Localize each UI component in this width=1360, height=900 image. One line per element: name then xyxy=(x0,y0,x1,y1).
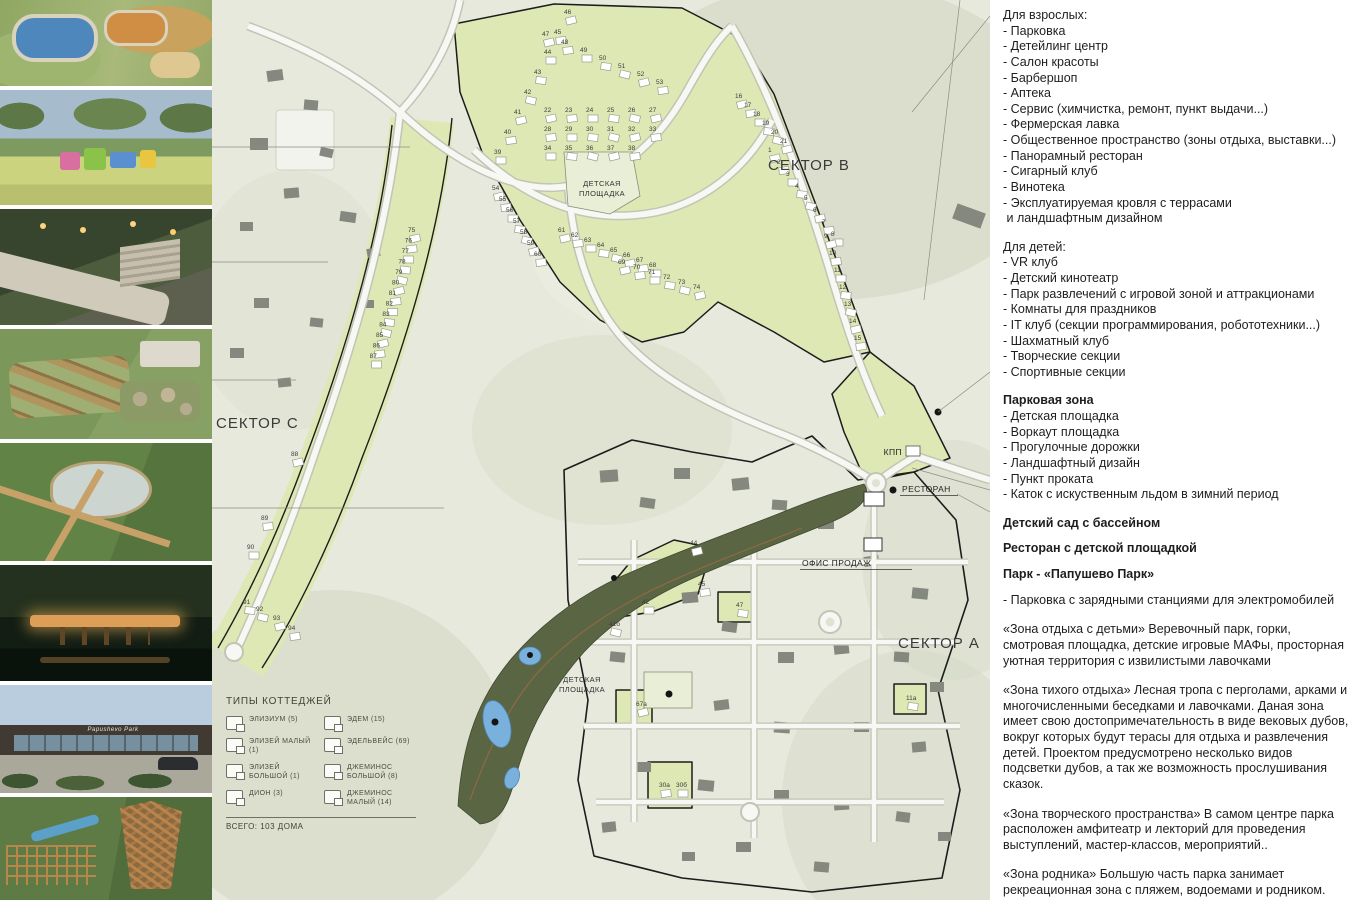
zone-creative-paragraph: «Зона творческого пространства» В самом … xyxy=(1003,807,1352,854)
lot-number: 37 xyxy=(607,145,615,152)
building-footprint xyxy=(895,811,910,823)
building-footprint xyxy=(912,741,927,752)
lot-number: 44 xyxy=(544,49,552,56)
zone-spring-paragraph: «Зона родника» Большую часть парка заним… xyxy=(1003,867,1352,900)
lot-number: 30а xyxy=(659,782,670,789)
building-footprint xyxy=(639,497,655,509)
pool-shape xyxy=(12,14,98,62)
lot-number: 30 xyxy=(586,126,594,133)
lot-number: 41 xyxy=(514,109,522,116)
lot-number: 15 xyxy=(854,335,862,342)
adults-item: - Общественное пространство (зоны отдыха… xyxy=(1003,133,1352,149)
park-zone-item: - Воркаут площадка xyxy=(1003,425,1352,441)
lot-number: 26 xyxy=(628,107,636,114)
masterplan-map: 1617181920211234567891011121314154645444… xyxy=(212,0,990,900)
lot-number: 42 xyxy=(642,599,650,606)
park-zone-header: Парковая зона xyxy=(1003,393,1352,409)
children-item: - Парк развлечений с игровой зоной и атт… xyxy=(1003,287,1352,303)
park-zone-item: - Прогулочные дорожки xyxy=(1003,440,1352,456)
lot-number: 77 xyxy=(402,248,410,255)
playground-north-label-1: ДЕТСКАЯ xyxy=(583,179,621,188)
lot-number: 67а xyxy=(636,701,647,708)
lot-number: 50 xyxy=(599,55,607,62)
lot-number: 19 xyxy=(762,120,770,127)
lot-number: 43 xyxy=(534,69,542,76)
lot-number: 32 xyxy=(628,126,636,133)
lot-number: 54 xyxy=(492,185,500,192)
lot-number: 78 xyxy=(398,259,406,266)
cottage-type-label: ЭДЕЛЬВЕЙС (69) xyxy=(347,737,410,746)
cottage-type-icon xyxy=(226,716,243,730)
park-zone-list: - Детская площадка- Воркаут площадка- Пр… xyxy=(1003,409,1352,503)
adults-item: - Детейлинг центр xyxy=(1003,39,1352,55)
adults-item: - Панорамный ресторан xyxy=(1003,149,1352,165)
lot-number: 35 xyxy=(565,145,573,152)
lot-number: 46 xyxy=(564,9,572,16)
building-footprint xyxy=(772,499,788,510)
lot-number: 9 xyxy=(824,233,828,240)
cottage-type-icon xyxy=(324,738,341,752)
lot-number: 80 xyxy=(392,280,400,287)
legend-total: ВСЕГО: 103 ДОМА xyxy=(226,817,416,831)
rope-net-shape xyxy=(6,845,96,885)
lot-number: 57 xyxy=(513,218,521,225)
play-equipment-shape xyxy=(60,152,80,170)
adults-item: - Парковка xyxy=(1003,24,1352,40)
lot-number: 85 xyxy=(376,332,384,339)
legend-grid: ЭЛИЗИУМ (5)ЭДЕМ (15)ЭЛИЗЕЙ МАЛЫЙ (1)ЭДЕЛ… xyxy=(226,715,416,808)
building-footprint xyxy=(713,699,729,711)
lot-number: 18 xyxy=(753,111,761,118)
restaurant-line: Ресторан с детской площадкой xyxy=(1003,541,1352,557)
lot-number: 89 xyxy=(261,515,269,522)
adults-item: - Сервис (химчистка, ремонт, пункт выдач… xyxy=(1003,102,1352,118)
lights-shape xyxy=(40,223,46,229)
lot-number: 71 xyxy=(648,269,656,276)
cottage-type-label: ДИОН (3) xyxy=(249,789,283,798)
bridge-shape xyxy=(30,615,180,627)
lot-number: 59 xyxy=(527,240,535,247)
lot-number: 66 xyxy=(623,252,631,259)
lot-number: 7 xyxy=(822,219,826,226)
lot-number: 93 xyxy=(273,615,281,622)
lot-number: 27 xyxy=(649,107,657,114)
zone-kids-paragraph: «Зона отдыха с детьми» Веревочный парк, … xyxy=(1003,622,1352,669)
lot-number: 81 xyxy=(389,290,397,297)
building-footprint xyxy=(230,348,244,358)
lot-number: 40 xyxy=(504,129,512,136)
building-footprint xyxy=(278,377,292,387)
building-footprint xyxy=(250,138,268,150)
children-item: - Шахматный клуб xyxy=(1003,334,1352,350)
lot-number: 47 xyxy=(542,31,550,38)
adults-list: - Парковка- Детейлинг центр- Салон красо… xyxy=(1003,24,1352,227)
children-item: - Детский кинотеатр xyxy=(1003,271,1352,287)
lot-number: 11а xyxy=(906,695,917,702)
building-footprint xyxy=(674,468,690,479)
playground-north-label-2: ПЛОЩАДКА xyxy=(579,189,625,198)
lot-number: 65 xyxy=(610,247,618,254)
playground-south-label-1: ДЕТСКАЯ xyxy=(563,675,601,684)
building-footprint xyxy=(911,587,928,600)
lot-number: 82 xyxy=(386,301,394,308)
legend-item: ЭЛИЗЕЙ БОЛЬШОЙ (1) xyxy=(226,763,318,782)
building-footprint xyxy=(600,469,619,482)
lot-number: 55 xyxy=(499,196,507,203)
section-park-zone: Парковая зона - Детская площадка- Воркау… xyxy=(1003,393,1352,502)
adults-item: - Фермерская лавка xyxy=(1003,117,1352,133)
stairs-shape xyxy=(120,239,180,287)
building-footprint xyxy=(310,317,324,327)
adults-item: - Винотека xyxy=(1003,180,1352,196)
lot-number: 67 xyxy=(636,257,644,264)
cottage-type-icon xyxy=(324,716,341,730)
lot-number: 84 xyxy=(379,322,387,329)
lot-number: 36 xyxy=(586,145,594,152)
lot-number: 79 xyxy=(395,269,403,276)
lot-number: 16 xyxy=(735,93,743,100)
building-footprint xyxy=(930,682,944,692)
lot-number: 20 xyxy=(771,129,779,136)
children-item: - Комнаты для праздников xyxy=(1003,302,1352,318)
playground-south-area xyxy=(644,672,692,708)
building-footprint xyxy=(636,762,651,772)
legend-item: ДЖЕМИНОС БОЛЬШОЙ (8) xyxy=(324,763,416,782)
lot-number: 90 xyxy=(247,544,255,551)
cottage-type-icon xyxy=(324,764,341,778)
kpp-building xyxy=(906,446,920,456)
legend-title: ТИПЫ КОТТЕДЖЕЙ xyxy=(226,696,416,707)
reflection-shape xyxy=(40,657,170,663)
building-footprint xyxy=(894,651,910,662)
cottage-type-label: ЭЛИЗИУМ (5) xyxy=(249,715,298,724)
lot-number: 14 xyxy=(849,318,857,325)
lot-number: 76 xyxy=(405,238,413,245)
lot-number: 47 xyxy=(736,602,744,609)
legend-item: ЭДЕМ (15) xyxy=(324,715,416,730)
court-shape xyxy=(104,10,168,46)
lot-number: 13 xyxy=(844,301,852,308)
building-footprint xyxy=(778,652,794,663)
adults-item: - Салон красоты xyxy=(1003,55,1352,71)
lot-number: 10 xyxy=(829,250,837,257)
lot-number: 87 xyxy=(370,353,378,360)
park-zone-item: - Пункт проката xyxy=(1003,472,1352,488)
lot-number: 42 xyxy=(524,89,532,96)
shrubs-shape xyxy=(0,771,212,793)
adults-item: - Сигарный клуб xyxy=(1003,164,1352,180)
play-equipment-shape xyxy=(84,148,106,170)
adults-item: - Барбершоп xyxy=(1003,71,1352,87)
photo-rope-park-tower xyxy=(0,797,212,900)
lot-number: 56 xyxy=(506,207,514,214)
building-footprint xyxy=(254,298,269,308)
lot-number: 88 xyxy=(291,451,299,458)
lot-number: 11 xyxy=(834,267,841,274)
lot-number: 29 xyxy=(565,126,573,133)
legend-item: ЭЛИЗЕЙ МАЛЫЙ (1) xyxy=(226,737,318,756)
lot-number: 25 xyxy=(607,107,615,114)
lot-number: 5 xyxy=(804,195,808,202)
play-equipment-shape xyxy=(110,152,136,168)
lot-number: 28 xyxy=(544,126,552,133)
restaurant-building xyxy=(864,492,884,506)
legend-item: ДИОН (3) xyxy=(226,789,318,808)
cottage-types-legend: ТИПЫ КОТТЕДЖЕЙ ЭЛИЗИУМ (5)ЭДЕМ (15)ЭЛИЗЕ… xyxy=(226,696,416,831)
lot-number: 30б xyxy=(676,781,687,789)
children-item: - IT клуб (секции программирования, робо… xyxy=(1003,318,1352,334)
park-zone-item: - Ландшафтный дизайн xyxy=(1003,456,1352,472)
cottage-type-icon xyxy=(226,738,243,752)
legend-item: ЭЛИЗИУМ (5) xyxy=(226,715,318,730)
lot-number: 49 xyxy=(580,47,588,54)
trees-shape xyxy=(0,96,212,138)
lot-number: 17 xyxy=(744,102,752,109)
sector-a-label: СЕКТОР A xyxy=(898,635,980,652)
section-adults: Для взрослых: - Парковка- Детейлинг цент… xyxy=(1003,8,1352,227)
lot-number: 92 xyxy=(256,606,264,613)
children-list: - VR клуб- Детский кинотеатр- Парк развл… xyxy=(1003,255,1352,380)
lot-number: 45 xyxy=(554,29,562,36)
lot-number: 63 xyxy=(584,237,592,244)
park-zone-item: - Детская площадка xyxy=(1003,409,1352,425)
building-sign: Papushevo Park xyxy=(78,727,148,734)
car-shape xyxy=(158,757,198,770)
lot-number: 38 xyxy=(628,145,636,152)
building-footprint xyxy=(682,852,695,861)
building-footprint xyxy=(602,821,617,832)
lot-number: 1 xyxy=(768,147,772,154)
lot-number: 31 xyxy=(607,126,615,133)
lot-number: 52 xyxy=(637,71,645,78)
lot-number: 23 xyxy=(565,107,573,114)
cottage-type-icon xyxy=(226,790,243,804)
sand-shape xyxy=(150,52,200,78)
section-children: Для детей: - VR клуб- Детский кинотеатр-… xyxy=(1003,240,1352,381)
parking-area xyxy=(276,110,334,170)
parking-line: - Парковка с зарядными станциями для эле… xyxy=(1003,593,1352,609)
park-zone-item: - Каток с искуственным льдом в зимний пе… xyxy=(1003,487,1352,503)
lot-number: 74 xyxy=(693,284,701,291)
children-header: Для детей: xyxy=(1003,240,1352,256)
building-footprint xyxy=(938,832,951,841)
lot-number: 51 xyxy=(618,63,626,70)
adults-item: - Эксплуатируемая кровля с террасами xyxy=(1003,196,1352,212)
kindergarten-line: Детский сад с бассейном xyxy=(1003,516,1352,532)
lot-number: 68 xyxy=(649,262,657,269)
lot-number: 8 xyxy=(831,231,835,238)
photo-evening-park-path xyxy=(0,209,212,325)
photo-strip: Papushevo Park xyxy=(0,0,212,900)
cottage-type-label: ЭЛИЗЕЙ МАЛЫЙ (1) xyxy=(249,737,318,756)
cottage-type-label: ЭЛИЗЕЙ БОЛЬШОЙ (1) xyxy=(249,763,318,782)
lot-number: 61 xyxy=(558,227,566,234)
children-item: - Спортивные секции xyxy=(1003,365,1352,381)
lot-number: 86 xyxy=(373,343,381,350)
legend-item: ДЖЕМИНОС МАЛЫЙ (14) xyxy=(324,789,416,808)
lot-number: 34 xyxy=(544,145,552,152)
lot-number: 70 xyxy=(633,264,641,271)
lot-number: 12 xyxy=(839,284,847,291)
lot-number: 4 xyxy=(795,183,799,190)
pavilion-shape xyxy=(140,341,200,367)
photo-night-bridge-pond xyxy=(0,565,212,681)
lot-number: 45 xyxy=(698,581,706,588)
cottage-type-icon xyxy=(324,790,341,804)
lot-number: 58 xyxy=(520,229,528,236)
info-panel: Для взрослых: - Парковка- Детейлинг цент… xyxy=(990,0,1360,900)
lot-number: 91 xyxy=(243,599,251,606)
lot-number: 69 xyxy=(618,259,626,266)
lot-number: 60 xyxy=(534,251,542,258)
lot-number: 44 xyxy=(690,540,698,547)
children-item: - Творческие секции xyxy=(1003,349,1352,365)
photo-playground-render xyxy=(0,90,212,205)
photo-aerial-sport-courts xyxy=(0,0,212,86)
lot-number: 83 xyxy=(382,311,390,318)
photo-sales-office-building: Papushevo Park xyxy=(0,685,212,793)
legend-item: ЭДЕЛЬВЕЙС (69) xyxy=(324,737,416,756)
park-title-line: Парк - «Папушево Парк» xyxy=(1003,567,1352,583)
playground-south-label-2: ПЛОЩАДКА xyxy=(559,685,605,694)
adults-header: Для взрослых: xyxy=(1003,8,1352,24)
children-item: - VR клуб xyxy=(1003,255,1352,271)
slide-shape xyxy=(30,814,100,843)
restaurant-label: РЕСТОРАН xyxy=(902,484,951,494)
building-footprint xyxy=(240,222,253,231)
sector-b-label: СЕКТОР B xyxy=(768,157,850,174)
zone-quiet-paragraph: «Зона тихого отдыха» Лесная тропа с перг… xyxy=(1003,683,1352,792)
building-footprint xyxy=(266,69,283,82)
building-footprint xyxy=(682,591,699,603)
cottage-type-icon xyxy=(226,764,243,778)
building-footprint xyxy=(284,187,300,198)
wooden-tower-shape xyxy=(120,801,182,889)
building-footprint xyxy=(697,779,714,792)
lot-number: 22 xyxy=(544,107,552,114)
sales-office-building xyxy=(864,538,882,551)
lot-number: 72 xyxy=(663,274,671,281)
lot-number: 24 xyxy=(586,107,594,114)
lot-number: 41б xyxy=(609,620,620,628)
lot-number: 73 xyxy=(678,279,686,286)
building-footprint xyxy=(814,861,830,872)
lot-number: 53 xyxy=(656,79,664,86)
building-footprint xyxy=(304,99,319,110)
lot-number: 64 xyxy=(597,242,605,249)
cottage-type-label: ДЖЕМИНОС МАЛЫЙ (14) xyxy=(347,789,416,808)
lot-number: 39 xyxy=(494,149,502,156)
adults-item: - Аптека xyxy=(1003,86,1352,102)
building-footprint xyxy=(731,477,749,491)
kpp-label: КПП xyxy=(884,447,902,457)
lot-number: 75 xyxy=(408,227,416,234)
lot-number: 48 xyxy=(561,39,569,46)
cottage-type-label: ЭДЕМ (15) xyxy=(347,715,385,724)
lot-number: 62 xyxy=(571,232,579,239)
masterplan-board: Papushevo Park xyxy=(0,0,1360,900)
lot-number: 21 xyxy=(780,138,788,145)
building-footprint xyxy=(736,842,751,852)
sector-c-label: СЕКТОР C xyxy=(216,415,299,432)
adults-item: и ландшафтным дизайном xyxy=(1003,211,1352,227)
photo-amphitheater-terraces xyxy=(0,329,212,439)
play-equipment-shape xyxy=(140,150,156,168)
lot-number: 6 xyxy=(813,207,817,214)
building-footprint xyxy=(721,621,737,633)
domes-shape xyxy=(120,381,200,421)
lot-number: 94 xyxy=(288,625,296,632)
sales-office-label: ОФИС ПРОДАЖ xyxy=(802,558,871,568)
building-footprint xyxy=(610,651,626,663)
cottage-type-label: ДЖЕМИНОС БОЛЬШОЙ (8) xyxy=(347,763,416,782)
glass-facade-shape xyxy=(14,735,198,751)
bridge-legs-shape xyxy=(60,627,150,645)
lot-number: 33 xyxy=(649,126,657,133)
photo-pond-deck-aerial xyxy=(0,443,212,561)
terraces-shape xyxy=(8,355,132,419)
